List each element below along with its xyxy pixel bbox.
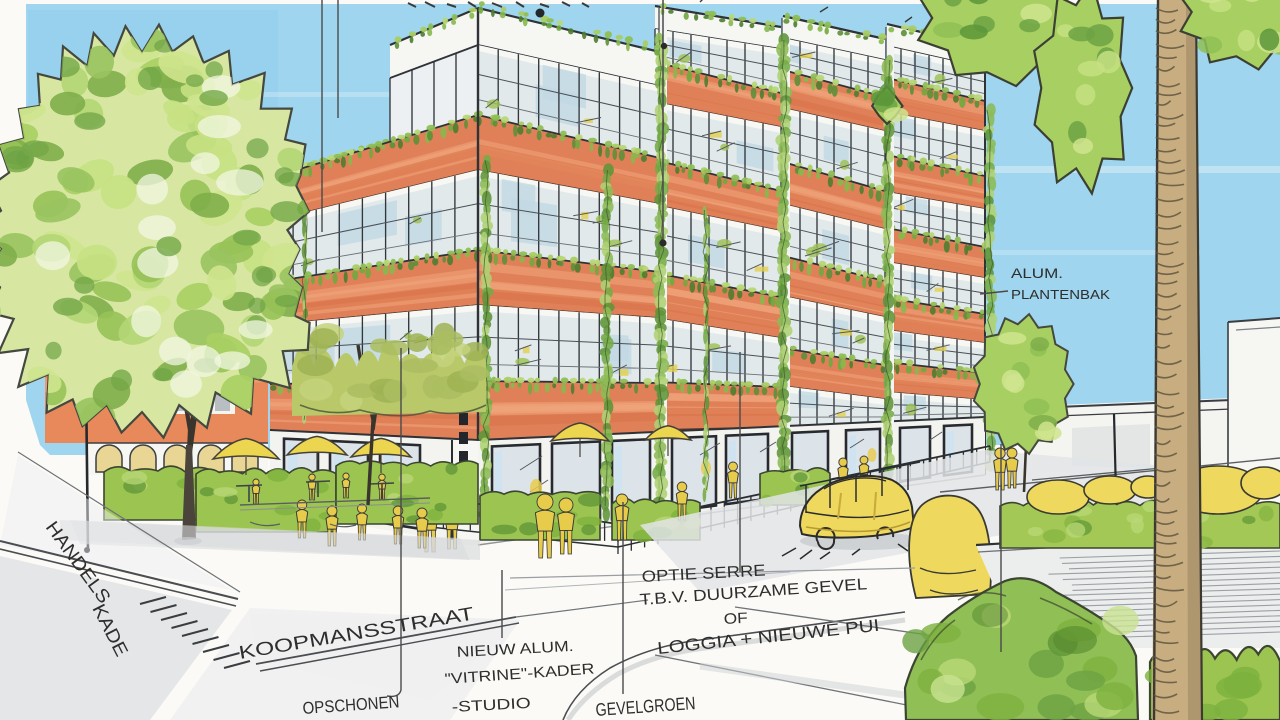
svg-text:ALUM.: ALUM. — [1011, 265, 1063, 281]
svg-text:OF: OF — [723, 610, 748, 628]
svg-text:PLANTENBAK: PLANTENBAK — [1011, 287, 1110, 302]
